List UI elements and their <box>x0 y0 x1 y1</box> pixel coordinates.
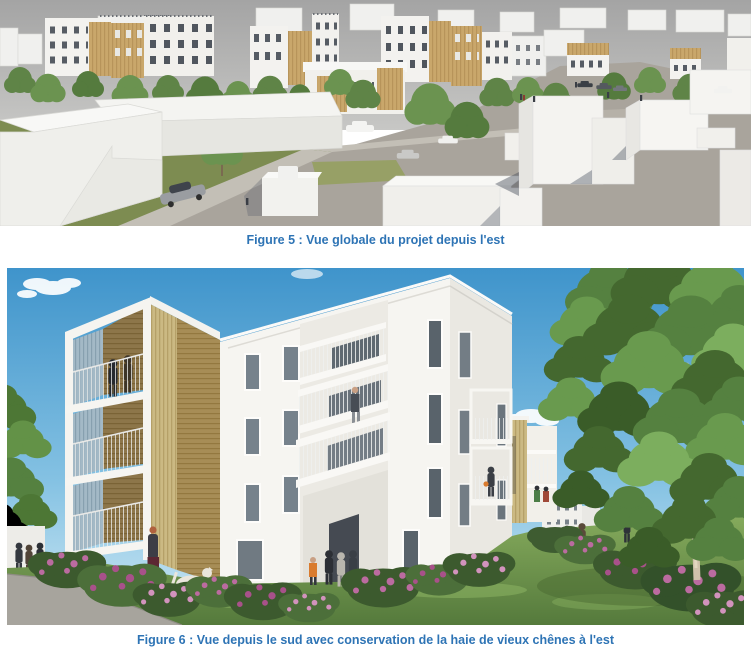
document-page: Figure 5 : Vue globale du projet depuis … <box>0 0 751 650</box>
figure-6: Figure 6 : Vue depuis le sud avec conser… <box>7 268 744 648</box>
fig6-balcony-tower <box>65 297 151 560</box>
figure-6-rendering <box>7 268 744 625</box>
fig6-wood-wall <box>150 296 220 584</box>
figure-5: Figure 5 : Vue globale du projet depuis … <box>0 0 751 248</box>
fig6-main-building-side <box>450 278 512 580</box>
figure-5-caption: Figure 5 : Vue globale du projet depuis … <box>0 233 751 248</box>
figure-6-caption: Figure 6 : Vue depuis le sud avec conser… <box>7 633 744 648</box>
figure-5-rendering <box>0 0 751 226</box>
